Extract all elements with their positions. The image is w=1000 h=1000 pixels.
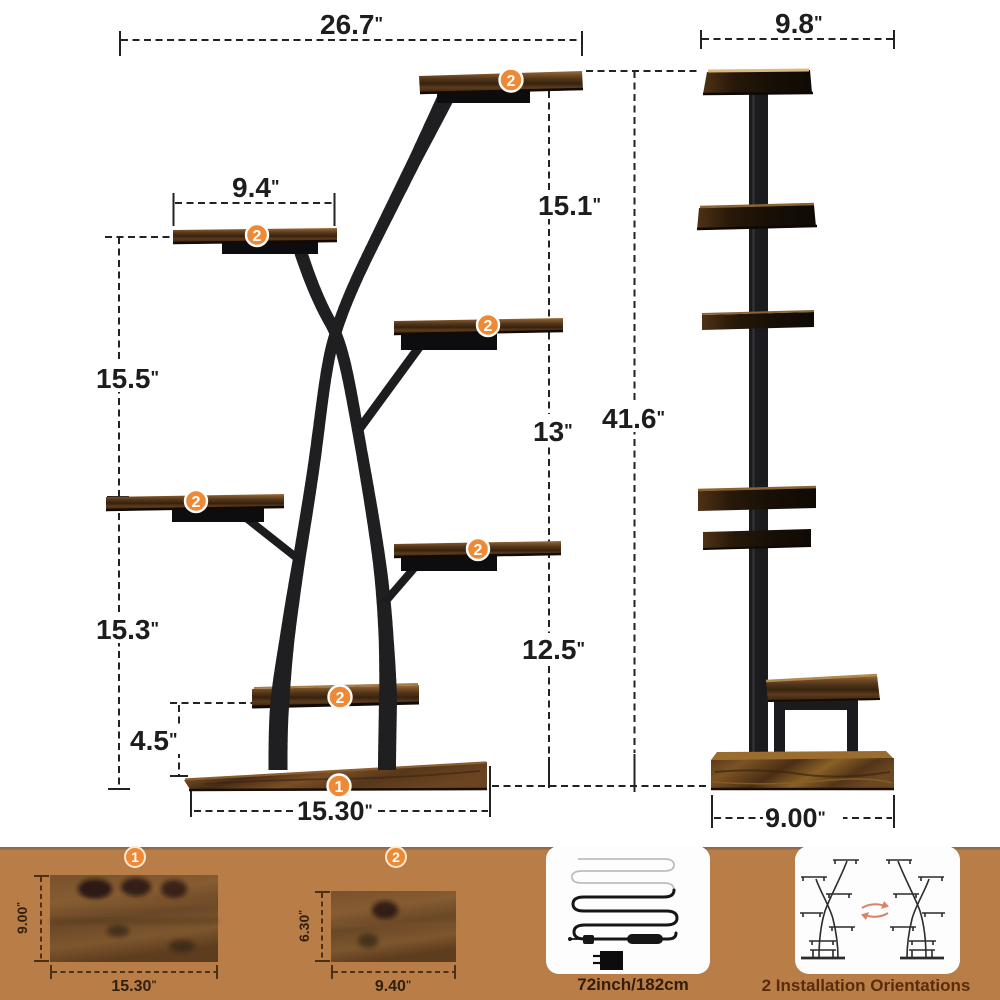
svg-text:2: 2 bbox=[484, 318, 493, 335]
svg-text:1: 1 bbox=[335, 779, 344, 796]
svg-text:26.7": 26.7" bbox=[320, 9, 383, 40]
svg-text:15.1": 15.1" bbox=[538, 190, 601, 221]
svg-text:2: 2 bbox=[192, 494, 201, 511]
svg-text:15.5": 15.5" bbox=[96, 363, 159, 394]
svg-text:2: 2 bbox=[474, 542, 483, 559]
svg-text:2: 2 bbox=[507, 73, 516, 90]
svg-text:2: 2 bbox=[253, 228, 262, 245]
svg-text:2 Installation Orientations: 2 Installation Orientations bbox=[762, 976, 971, 995]
svg-text:2: 2 bbox=[392, 849, 400, 865]
svg-text:1: 1 bbox=[131, 849, 139, 865]
svg-text:72inch/182cm: 72inch/182cm bbox=[577, 975, 689, 994]
svg-text:41.6": 41.6" bbox=[602, 403, 665, 434]
svg-text:15.30": 15.30" bbox=[297, 796, 373, 826]
svg-text:15.30": 15.30" bbox=[111, 978, 156, 995]
svg-text:9.00": 9.00" bbox=[765, 803, 826, 833]
svg-text:12.5": 12.5" bbox=[522, 634, 585, 665]
svg-text:15.3": 15.3" bbox=[96, 614, 159, 645]
svg-text:2: 2 bbox=[336, 690, 345, 707]
svg-text:9.40": 9.40" bbox=[375, 978, 411, 995]
